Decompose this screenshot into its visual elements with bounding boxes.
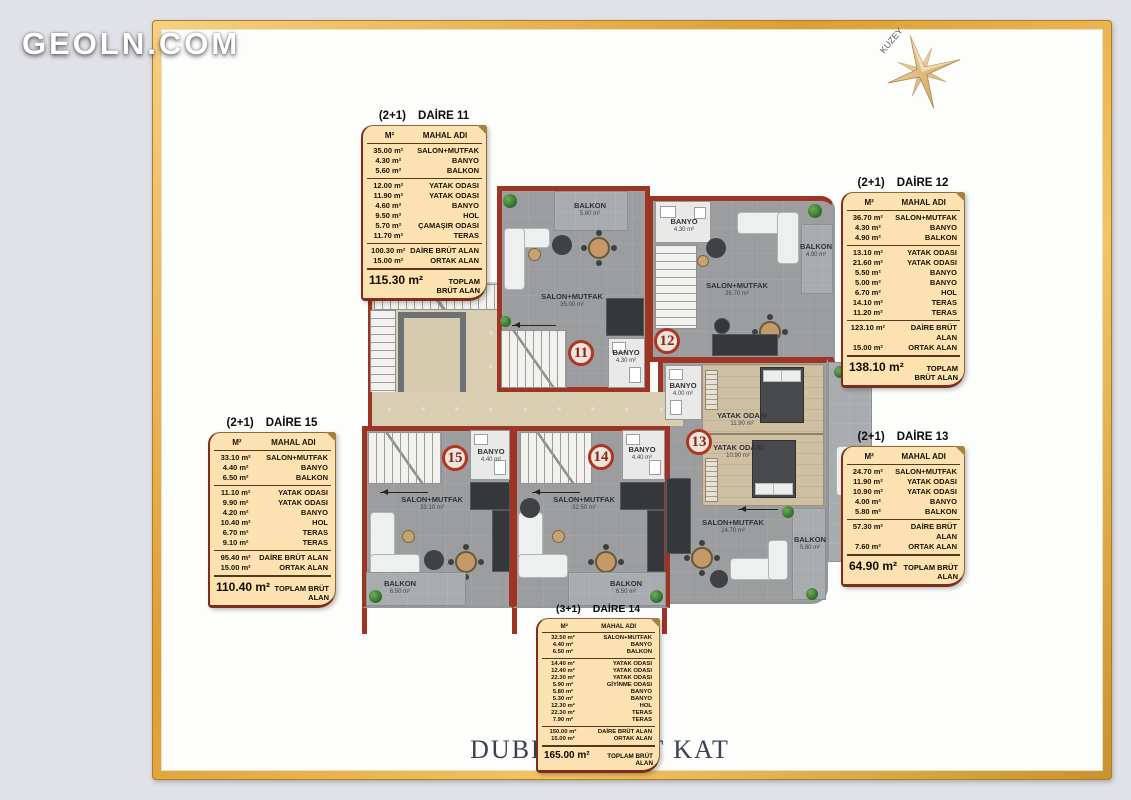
compass-star-icon: KUZEY <box>870 26 966 112</box>
plant <box>503 194 517 208</box>
table-row: 5.80 m²BANYO <box>542 689 655 696</box>
cell-room: ÇAMAŞIR ODASI <box>410 221 482 231</box>
table-rows: 24.70 m²SALON+MUTFAK11.90 m²YATAK ODASI1… <box>847 465 960 554</box>
compass-rose: KUZEY <box>870 26 966 117</box>
coffee-table <box>697 255 709 267</box>
table-card: M²MAHAL ADI 33.10 m²SALON+MUTFAK4.40 m²B… <box>208 432 336 608</box>
cell-area: 5.30 m² <box>542 696 584 703</box>
plant <box>369 590 382 603</box>
table-row: 4.40 m²BANYO <box>214 463 331 473</box>
unit-13-balcony <box>792 508 826 600</box>
cell-area: 12.30 m² <box>542 703 584 710</box>
cell-area: 5.00 m² <box>847 278 889 288</box>
entry-arrow <box>532 492 580 493</box>
cell-area: 6.70 m² <box>214 528 257 538</box>
room-label-balkon-14: BALKON6.50 m² <box>610 580 642 596</box>
unit-number-13: 13 <box>686 429 712 455</box>
cell-room: BANYO <box>257 463 331 473</box>
table-row: 7.60 m²ORTAK ALAN <box>847 542 960 552</box>
table-row: 100.30 m²DAİRE BRÜT ALAN <box>367 246 482 256</box>
table-header: (2+1)DAİRE 12 <box>841 177 965 189</box>
table-rows: 36.70 m²SALON+MUTFAK4.30 m²BANYO4.90 m²B… <box>847 211 960 355</box>
col-header-room: MAHAL ADI <box>889 198 958 207</box>
info-table-daire-14: (3+1)DAİRE 14 M²MAHAL ADI 32.50 m²SALON+… <box>536 603 660 773</box>
cell-area: 5.70 m² <box>367 221 410 231</box>
cell-area: 24.70 m² <box>847 467 889 477</box>
total-label: TOPLAM BRÜT ALAN <box>274 584 329 602</box>
cell-area: 5.60 m² <box>367 166 410 176</box>
kitchen-counter <box>620 482 665 510</box>
stairs-unit-15 <box>368 432 442 484</box>
table-row: 9.10 m²TERAS <box>214 538 331 548</box>
dining-table <box>455 551 477 573</box>
unit-type: (2+1) <box>858 431 885 443</box>
cell-area: 4.30 m² <box>367 156 410 166</box>
cell-area: 9.10 m² <box>214 538 257 548</box>
unit-number-15: 15 <box>442 445 468 471</box>
cell-room: SALON+MUTFAK <box>584 635 655 642</box>
table-card: M²MAHAL ADI 24.70 m²SALON+MUTFAK11.90 m²… <box>841 446 965 587</box>
sofa <box>768 540 788 580</box>
entry-arrow <box>738 509 778 510</box>
table-rows: 35.00 m²SALON+MUTFAK4.30 m²BANYO5.60 m²B… <box>367 144 482 268</box>
cell-area: 11.20 m² <box>847 308 889 318</box>
cell-room: ORTAK ALAN <box>410 256 482 266</box>
cell-room: BANYO <box>584 642 655 649</box>
cell-area: 10.90 m² <box>847 487 889 497</box>
table-row: 5.50 m²BANYO <box>847 268 960 278</box>
cell-area: 22.30 m² <box>542 675 584 682</box>
table-row: 15.00 m²ORTAK ALAN <box>214 563 331 573</box>
table-card: M²MAHAL ADI 32.50 m²SALON+MUTFAK4.40 m²B… <box>536 618 660 773</box>
table-row: 33.10 m²SALON+MUTFAK <box>214 453 331 463</box>
cell-area: 11.90 m² <box>847 477 889 487</box>
cell-area: 6.50 m² <box>542 649 584 656</box>
table-row: 11.70 m²TERAS <box>367 231 482 241</box>
table-row: 123.10 m²DAİRE BRÜT ALAN <box>847 323 960 343</box>
plant <box>500 316 511 327</box>
rug <box>424 550 444 570</box>
table-header: (2+1)DAİRE 15 <box>208 417 336 429</box>
cell-room: DAİRE BRÜT ALAN <box>257 553 331 563</box>
cell-area: 36.70 m² <box>847 213 889 223</box>
room-label-balkon-13: BALKON5.80 m² <box>794 536 826 552</box>
cell-room: SALON+MUTFAK <box>257 453 331 463</box>
col-header-area: M² <box>369 131 410 140</box>
cell-area: 4.00 m² <box>847 497 889 507</box>
cell-room: BANYO <box>410 201 482 211</box>
table-group: 36.70 m²SALON+MUTFAK4.30 m²BANYO4.90 m²B… <box>847 211 960 245</box>
table-row: 12.40 m²YATAK ODASI <box>542 668 655 675</box>
cell-room: HOL <box>257 518 331 528</box>
table-row: 5.30 m²BANYO <box>542 696 655 703</box>
table-group: 14.40 m²YATAK ODASI12.40 m²YATAK ODASI22… <box>542 658 655 726</box>
cell-area: 4.60 m² <box>367 201 410 211</box>
cell-room: BANYO <box>257 508 331 518</box>
table-group: 123.10 m²DAİRE BRÜT ALAN15.00 m²ORTAK AL… <box>847 320 960 355</box>
kitchen-counter <box>606 298 644 336</box>
cell-area: 7.90 m² <box>542 717 584 724</box>
cell-room: BANYO <box>889 268 960 278</box>
cell-area: 5.50 m² <box>847 268 889 278</box>
cell-area: 100.30 m² <box>367 246 410 256</box>
cell-room: YATAK ODASI <box>584 668 655 675</box>
col-header-area: M² <box>216 438 258 447</box>
table-row: 6.50 m²BALKON <box>542 649 655 656</box>
cell-area: 4.20 m² <box>214 508 257 518</box>
cell-room: DAİRE BRÜT ALAN <box>889 522 960 542</box>
cell-room: SALON+MUTFAK <box>889 467 960 477</box>
cell-room: BANYO <box>889 278 960 288</box>
table-row: 4.90 m²BALKON <box>847 233 960 243</box>
rug <box>710 570 728 588</box>
cell-area: 10.40 m² <box>214 518 257 528</box>
unit-type: (2+1) <box>858 177 885 189</box>
cell-area: 4.90 m² <box>847 233 889 243</box>
table-row: 6.70 m²TERAS <box>214 528 331 538</box>
cell-area: 9.50 m² <box>367 211 410 221</box>
cell-area: 150.00 m² <box>542 729 584 736</box>
table-row: 95.40 m²DAİRE BRÜT ALAN <box>214 553 331 563</box>
cell-area: 13.10 m² <box>847 248 889 258</box>
cell-room: YATAK ODASI <box>889 487 960 497</box>
table-row: 36.70 m²SALON+MUTFAK <box>847 213 960 223</box>
table-row: 15.00 m²ORTAK ALAN <box>367 256 482 266</box>
kitchen-counter <box>712 334 778 356</box>
table-row: 5.80 m²BALKON <box>847 507 960 517</box>
plant <box>808 204 822 218</box>
cell-area: 57.30 m² <box>847 522 889 542</box>
col-header-room: MAHAL ADI <box>410 131 480 140</box>
cell-area: 4.40 m² <box>542 642 584 649</box>
dining-table <box>595 551 617 573</box>
cell-room: BALKON <box>584 649 655 656</box>
rug <box>552 235 572 255</box>
room-label-balkon-11: BALKON5.60 m² <box>574 202 606 218</box>
kitchen-counter <box>492 510 510 572</box>
room-label-yatak-13b: YATAK ODASI10.90 m² <box>713 444 763 460</box>
cell-room: YATAK ODASI <box>257 498 331 508</box>
info-table-daire-11: (2+1)DAİRE 11 M²MAHAL ADI 35.00 m²SALON+… <box>361 110 487 301</box>
room-label-banyo-11: BANYO4.30 m² <box>612 349 639 365</box>
cell-room: YATAK ODASI <box>257 488 331 498</box>
table-group: 35.00 m²SALON+MUTFAK4.30 m²BANYO5.60 m²B… <box>367 144 482 178</box>
wall-stub <box>362 606 367 634</box>
info-table-daire-15: (2+1)DAİRE 15 M²MAHAL ADI 33.10 m²SALON+… <box>208 417 336 608</box>
unit-number-14: 14 <box>588 444 614 470</box>
table-group: 57.30 m²DAİRE BRÜT ALAN7.60 m²ORTAK ALAN <box>847 519 960 554</box>
room-label-yatak-13a: YATAK ODASI11.90 m² <box>717 412 767 428</box>
table-card: M²MAHAL ADI 35.00 m²SALON+MUTFAK4.30 m²B… <box>361 125 487 301</box>
cell-area: 5.80 m² <box>847 507 889 517</box>
cell-area: 11.70 m² <box>367 231 410 241</box>
room-label-banyo-13: BANYO4.00 m² <box>669 382 696 398</box>
room-label-balkon-12: BALKON4.90 m² <box>800 243 832 259</box>
total-label: TOPLAM BRÜT ALAN <box>427 277 480 295</box>
stairs-unit-14 <box>520 432 592 484</box>
info-table-daire-13: (2+1)DAİRE 13 M²MAHAL ADI 24.70 m²SALON+… <box>841 431 965 587</box>
cell-area: 7.60 m² <box>847 542 889 552</box>
rug <box>706 238 726 258</box>
cell-area: 15.00 m² <box>367 256 410 266</box>
table-row: 12.00 m²YATAK ODASI <box>367 181 482 191</box>
cell-room: ORTAK ALAN <box>889 542 960 552</box>
kitchen-counter <box>470 482 510 510</box>
table-group: 13.10 m²YATAK ODASI21.60 m²YATAK ODASI5.… <box>847 245 960 320</box>
cell-room: ORTAK ALAN <box>584 736 655 743</box>
cell-room: HOL <box>889 288 960 298</box>
coffee-table <box>402 530 415 543</box>
table-row: 15.00 m²ORTAK ALAN <box>847 343 960 353</box>
table-row: 11.90 m²YATAK ODASI <box>847 477 960 487</box>
total-label: TOPLAM BRÜT ALAN <box>908 364 958 382</box>
table-group: 24.70 m²SALON+MUTFAK11.90 m²YATAK ODASI1… <box>847 465 960 519</box>
unit-type: (2+1) <box>227 417 254 429</box>
room-label-banyo-12: BANYO4.30 m² <box>670 218 697 234</box>
kitchen-counter <box>666 478 691 554</box>
room-label-salon-11: SALON+MUTFAK35.00 m² <box>541 293 603 309</box>
table-header: (3+1)DAİRE 14 <box>536 603 660 615</box>
total-area: 115.30 m² <box>369 273 423 287</box>
table-row: 24.70 m²SALON+MUTFAK <box>847 467 960 477</box>
cell-room: HOL <box>584 703 655 710</box>
table-header: (2+1)DAİRE 11 <box>361 110 487 122</box>
col-header-room: MAHAL ADI <box>584 623 653 630</box>
dining-table <box>691 547 713 569</box>
table-row: 6.50 m²BALKON <box>214 473 331 483</box>
table-group: 32.50 m²SALON+MUTFAK4.40 m²BANYO6.50 m²B… <box>542 633 655 658</box>
entry-arrow <box>380 492 428 493</box>
unit-name: DAİRE 11 <box>418 110 469 122</box>
cell-room: TERAS <box>889 308 960 318</box>
cell-area: 15.00 m² <box>847 343 889 353</box>
cell-area: 15.00 m² <box>542 736 584 743</box>
wall-stub <box>662 606 667 634</box>
cell-area: 14.40 m² <box>542 661 584 668</box>
cell-area: 15.00 m² <box>214 563 257 573</box>
table-row: 5.00 m²BANYO <box>847 278 960 288</box>
table-row: 5.90 m²GİYİNME ODASI <box>542 682 655 689</box>
corridor <box>368 392 683 426</box>
cell-area: 9.90 m² <box>214 498 257 508</box>
table-row: 14.10 m²TERAS <box>847 298 960 308</box>
cell-area: 5.90 m² <box>542 682 584 689</box>
cell-room: DAİRE BRÜT ALAN <box>584 729 655 736</box>
wall-stub <box>512 606 517 634</box>
table-row: 11.20 m²TERAS <box>847 308 960 318</box>
cell-area: 95.40 m² <box>214 553 257 563</box>
table-card: M²MAHAL ADI 36.70 m²SALON+MUTFAK4.30 m²B… <box>841 192 965 388</box>
cell-area: 6.70 m² <box>847 288 889 298</box>
cell-room: BANYO <box>889 497 960 507</box>
cell-area: 4.40 m² <box>214 463 257 473</box>
cell-room: DAİRE BRÜT ALAN <box>410 246 482 256</box>
table-row: 9.50 m²HOL <box>367 211 482 221</box>
table-row: 6.70 m²HOL <box>847 288 960 298</box>
unit-name: DAİRE 14 <box>593 603 640 615</box>
total-area: 165.00 m² <box>544 750 590 761</box>
table-row: 57.30 m²DAİRE BRÜT ALAN <box>847 522 960 542</box>
total-area: 64.90 m² <box>849 559 897 573</box>
cell-room: YATAK ODASI <box>410 191 482 201</box>
table-group: 150.00 m²DAİRE BRÜT ALAN15.00 m²ORTAK AL… <box>542 726 655 745</box>
table-row: 4.40 m²BANYO <box>542 642 655 649</box>
room-label-salon-13: SALON+MUTFAK24.70 m² <box>702 519 764 535</box>
cell-room: ORTAK ALAN <box>889 343 960 353</box>
table-row: 11.10 m²YATAK ODASI <box>214 488 331 498</box>
table-row: 22.30 m²YATAK ODASI <box>542 675 655 682</box>
coffee-table <box>528 248 541 261</box>
room-label-salon-12: SALON+MUTFAK36.70 m² <box>706 282 768 298</box>
cell-area: 12.40 m² <box>542 668 584 675</box>
cell-room: BALKON <box>257 473 331 483</box>
info-table-daire-12: (2+1)DAİRE 12 M²MAHAL ADI 36.70 m²SALON+… <box>841 177 965 388</box>
cell-area: 5.80 m² <box>542 689 584 696</box>
unit-name: DAİRE 15 <box>266 417 318 429</box>
cell-area: 21.60 m² <box>847 258 889 268</box>
table-row: 5.60 m²BALKON <box>367 166 482 176</box>
cell-area: 14.10 m² <box>847 298 889 308</box>
cell-area: 11.10 m² <box>214 488 257 498</box>
cell-room: HOL <box>410 211 482 221</box>
table-row: 35.00 m²SALON+MUTFAK <box>367 146 482 156</box>
table-row: 15.00 m²ORTAK ALAN <box>542 736 655 743</box>
cell-room: TERAS <box>889 298 960 308</box>
cell-room: TERAS <box>584 717 655 724</box>
cell-room: GİYİNME ODASI <box>584 682 655 689</box>
table-row: 4.30 m²BANYO <box>367 156 482 166</box>
room-label-salon-14: SALON+MUTFAK32.50 m² <box>553 496 615 512</box>
plant <box>650 590 663 603</box>
unit-name: DAİRE 13 <box>897 431 949 443</box>
compass-north-label: KUZEY <box>878 26 905 55</box>
cell-room: BALKON <box>410 166 482 176</box>
site-logo: GEOLN.COM <box>22 26 240 62</box>
kitchen-counter <box>647 510 665 572</box>
table-row: 4.30 m²BANYO <box>847 223 960 233</box>
unit-type: (2+1) <box>379 110 406 122</box>
stairs-unit-11 <box>501 330 567 388</box>
cell-room: BANYO <box>584 689 655 696</box>
unit-name: DAİRE 12 <box>897 177 949 189</box>
cell-area: 33.10 m² <box>214 453 257 463</box>
table-group: 12.00 m²YATAK ODASI11.90 m²YATAK ODASI4.… <box>367 178 482 243</box>
room-label-balkon-15: BALKON6.50 m² <box>384 580 416 596</box>
table-group: 33.10 m²SALON+MUTFAK4.40 m²BANYO6.50 m²B… <box>214 451 331 485</box>
table-group: 100.30 m²DAİRE BRÜT ALAN15.00 m²ORTAK AL… <box>367 243 482 268</box>
cell-room: SALON+MUTFAK <box>889 213 960 223</box>
table-row: 22.30 m²TERAS <box>542 710 655 717</box>
cell-room: SALON+MUTFAK <box>410 146 482 156</box>
table-row: 11.90 m²YATAK ODASI <box>367 191 482 201</box>
cell-area: 32.50 m² <box>542 635 584 642</box>
table-row: 9.90 m²YATAK ODASI <box>214 498 331 508</box>
cell-room: YATAK ODASI <box>410 181 482 191</box>
cell-room: BALKON <box>889 507 960 517</box>
table-rows: 32.50 m²SALON+MUTFAK4.40 m²BANYO6.50 m²B… <box>542 633 655 745</box>
cell-room: TERAS <box>257 538 331 548</box>
table-row: 10.40 m²HOL <box>214 518 331 528</box>
page: GEOLN.COM KUZEY <box>0 0 1131 800</box>
table-group: 95.40 m²DAİRE BRÜT ALAN15.00 m²ORTAK ALA… <box>214 550 331 575</box>
cell-room: TERAS <box>257 528 331 538</box>
total-area: 138.10 m² <box>849 360 904 374</box>
cell-room: DAİRE BRÜT ALAN <box>889 323 960 343</box>
cell-room: BANYO <box>889 223 960 233</box>
table-row: 13.10 m²YATAK ODASI <box>847 248 960 258</box>
sofa <box>518 554 568 578</box>
cell-room: TERAS <box>584 710 655 717</box>
cell-room: YATAK ODASI <box>584 675 655 682</box>
cell-room: BANYO <box>584 696 655 703</box>
table-row: 5.70 m²ÇAMAŞIR ODASI <box>367 221 482 231</box>
coffee-table <box>552 530 565 543</box>
table-row: 4.20 m²BANYO <box>214 508 331 518</box>
unit-12-balcony <box>801 224 833 294</box>
cell-area: 35.00 m² <box>367 146 410 156</box>
cell-room: YATAK ODASI <box>889 248 960 258</box>
cell-area: 123.10 m² <box>847 323 889 343</box>
table-row: 10.90 m²YATAK ODASI <box>847 487 960 497</box>
plant <box>806 588 818 600</box>
col-header-room: MAHAL ADI <box>889 452 958 461</box>
sofa <box>777 212 799 264</box>
entry-arrow <box>512 325 556 326</box>
cell-room: TERAS <box>410 231 482 241</box>
total-label: TOPLAM BRÜT ALAN <box>901 563 958 581</box>
table-rows: 33.10 m²SALON+MUTFAK4.40 m²BANYO6.50 m²B… <box>214 451 331 575</box>
cell-area: 6.50 m² <box>214 473 257 483</box>
cell-room: YATAK ODASI <box>889 258 960 268</box>
total-area: 110.40 m² <box>216 580 270 594</box>
dining-table <box>588 237 610 259</box>
wardrobe <box>705 458 718 502</box>
plant <box>782 506 794 518</box>
table-row: 7.90 m²TERAS <box>542 717 655 724</box>
room-label-salon-15: SALON+MUTFAK33.10 m² <box>401 496 463 512</box>
col-header-area: M² <box>849 198 889 207</box>
table-row: 14.40 m²YATAK ODASI <box>542 661 655 668</box>
cell-room: ORTAK ALAN <box>257 563 331 573</box>
wardrobe <box>705 370 718 410</box>
total-label: TOPLAM BRÜT ALAN <box>594 753 653 767</box>
table-row: 21.60 m²YATAK ODASI <box>847 258 960 268</box>
cell-area: 11.90 m² <box>367 191 410 201</box>
table-row: 32.50 m²SALON+MUTFAK <box>542 635 655 642</box>
table-row: 4.60 m²BANYO <box>367 201 482 211</box>
unit-number-11: 11 <box>568 340 594 366</box>
col-header-area: M² <box>544 623 584 630</box>
table-group: 11.10 m²YATAK ODASI9.90 m²YATAK ODASI4.2… <box>214 485 331 550</box>
table-header: (2+1)DAİRE 13 <box>841 431 965 443</box>
unit-type: (3+1) <box>556 603 581 615</box>
kitchen-appliance <box>714 318 730 334</box>
cell-room: BALKON <box>889 233 960 243</box>
cell-room: BANYO <box>410 156 482 166</box>
room-label-banyo-15: BANYO4.40 m² <box>477 448 504 464</box>
table-row: 4.00 m²BANYO <box>847 497 960 507</box>
cell-room: YATAK ODASI <box>889 477 960 487</box>
rug <box>520 498 540 518</box>
cell-room: YATAK ODASI <box>584 661 655 668</box>
sofa <box>504 228 525 290</box>
table-row: 150.00 m²DAİRE BRÜT ALAN <box>542 729 655 736</box>
table-row: 12.30 m²HOL <box>542 703 655 710</box>
col-header-room: MAHAL ADI <box>258 438 329 447</box>
room-label-banyo-14: BANYO4.40 m² <box>628 446 655 462</box>
unit-number-12: 12 <box>654 328 680 354</box>
cell-area: 4.30 m² <box>847 223 889 233</box>
